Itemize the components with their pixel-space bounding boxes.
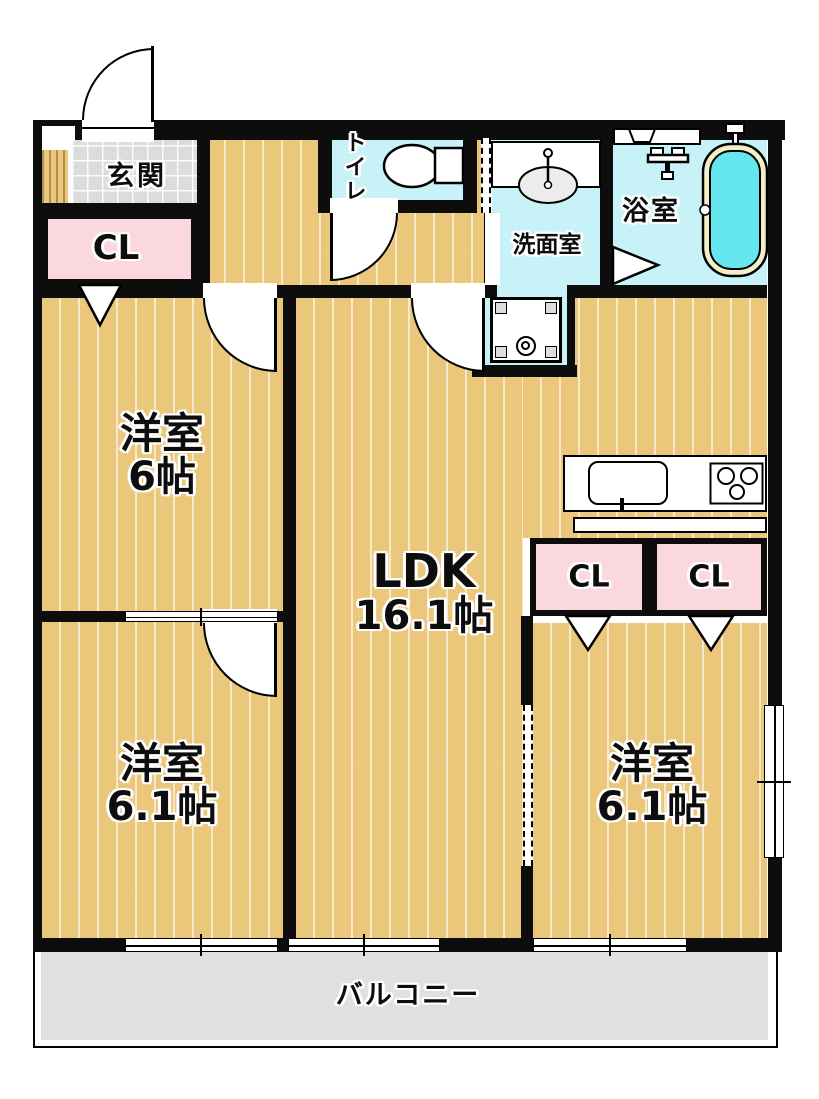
- label-genkan: 玄関: [107, 163, 167, 191]
- window-tick: [363, 934, 365, 956]
- wall-toilet-bottom: [398, 200, 463, 213]
- kitchen-faucet-icon: [620, 498, 624, 512]
- room-size: 16.1帖: [355, 595, 494, 637]
- label-bedroom-top-left: 洋室 6帖: [120, 412, 204, 498]
- door-threshold-line: [82, 127, 154, 129]
- room-name: 洋室: [107, 742, 218, 786]
- label-washroom: 洗面室: [513, 233, 582, 257]
- label-closet-ldk-right: CL: [688, 561, 729, 593]
- window-balcony-left: [125, 938, 278, 952]
- door-leaf-entrance: [151, 46, 154, 122]
- wall-mid-left: [278, 611, 296, 622]
- wall-nook-bottom: [472, 365, 577, 377]
- closet-door-icon: [686, 614, 736, 654]
- vanity-sink-icon: [492, 140, 602, 206]
- toilet-icon: [381, 140, 467, 192]
- wall-niche: [42, 126, 75, 141]
- washroom-side-panel: [484, 213, 500, 285]
- window-tick: [609, 934, 611, 956]
- drain-inner: [521, 341, 530, 350]
- room-size: 6帖: [120, 456, 204, 498]
- closet-door-icon: [75, 283, 125, 329]
- door-leaf-toilet: [330, 213, 333, 281]
- wall-bedroom-right-top: [521, 616, 533, 705]
- sliding-partition-left-rooms: [125, 611, 278, 622]
- closet-door-icon: [563, 614, 613, 654]
- wall-bottom-seg: [440, 938, 533, 952]
- window-balcony-right: [533, 938, 687, 952]
- pan-pad: [495, 302, 507, 314]
- sliding-door-washroom: [481, 138, 491, 213]
- wall-bottom-seg: [42, 938, 125, 952]
- washer-pan-icon: [490, 297, 562, 363]
- wall-mid-left: [42, 611, 125, 622]
- kitchen-lower-cabinet: [573, 517, 767, 533]
- wall-nook-right: [567, 293, 575, 377]
- label-closet-ldk-left: CL: [568, 561, 609, 593]
- kitchen-sink: [588, 461, 668, 505]
- room-name: 洋室: [120, 412, 204, 456]
- shower-mixer-icon: [647, 140, 689, 182]
- door-leaf-bedroom-bottom-left: [274, 623, 277, 697]
- sliding-door-bedroom-right: [523, 705, 533, 866]
- label-bedroom-bottom-left: 洋室 6.1帖: [107, 742, 218, 828]
- drain-icon: [516, 336, 536, 356]
- wall-left: [33, 140, 42, 952]
- door-threshold: [82, 118, 154, 142]
- room-name: LDK: [355, 547, 494, 595]
- label-balcony: バルコニー: [336, 982, 480, 1010]
- door-leaf-ldk: [482, 298, 485, 372]
- wall-bottom-seg: [687, 938, 768, 952]
- label-bedroom-right: 洋室 6.1帖: [597, 742, 708, 828]
- shoe-cabinet: [42, 150, 68, 204]
- label-toilet: トイレ: [341, 131, 364, 203]
- bathtub-icon: [700, 122, 770, 280]
- bath-door-icon: [610, 244, 662, 288]
- floor-plan: 玄関 CL トイレ 洗面室 浴室 洋室 6帖 LDK 16.1帖 CL CL 洋…: [0, 0, 819, 1099]
- window-tick: [757, 781, 791, 783]
- wall-bath-bottom: [567, 285, 767, 298]
- wall-h-main: [277, 285, 411, 298]
- window-tick: [200, 608, 202, 626]
- room-name: 洋室: [597, 742, 708, 786]
- door-leaf-bedroom-top-left: [274, 298, 277, 372]
- pan-pad: [545, 302, 557, 314]
- pan-pad: [495, 346, 507, 358]
- pan-pad: [545, 346, 557, 358]
- room-size: 6.1帖: [597, 786, 708, 828]
- wall-entrance-bottom: [42, 203, 210, 213]
- wall-bedroom-right-bottom: [521, 866, 533, 938]
- wall-bottom-seg: [278, 938, 288, 952]
- window-balcony-ldk: [288, 938, 440, 952]
- window-bedroom-right: [764, 705, 784, 858]
- window-tick: [200, 934, 202, 956]
- label-bathroom: 浴室: [622, 198, 680, 226]
- label-closet-entrance: CL: [93, 231, 140, 267]
- stove-icon: [709, 462, 765, 506]
- door-arc-entrance: [82, 48, 154, 120]
- wall-closet-divider: [645, 538, 654, 616]
- label-ldk: LDK 16.1帖: [355, 547, 494, 637]
- room-size: 6.1帖: [107, 786, 218, 828]
